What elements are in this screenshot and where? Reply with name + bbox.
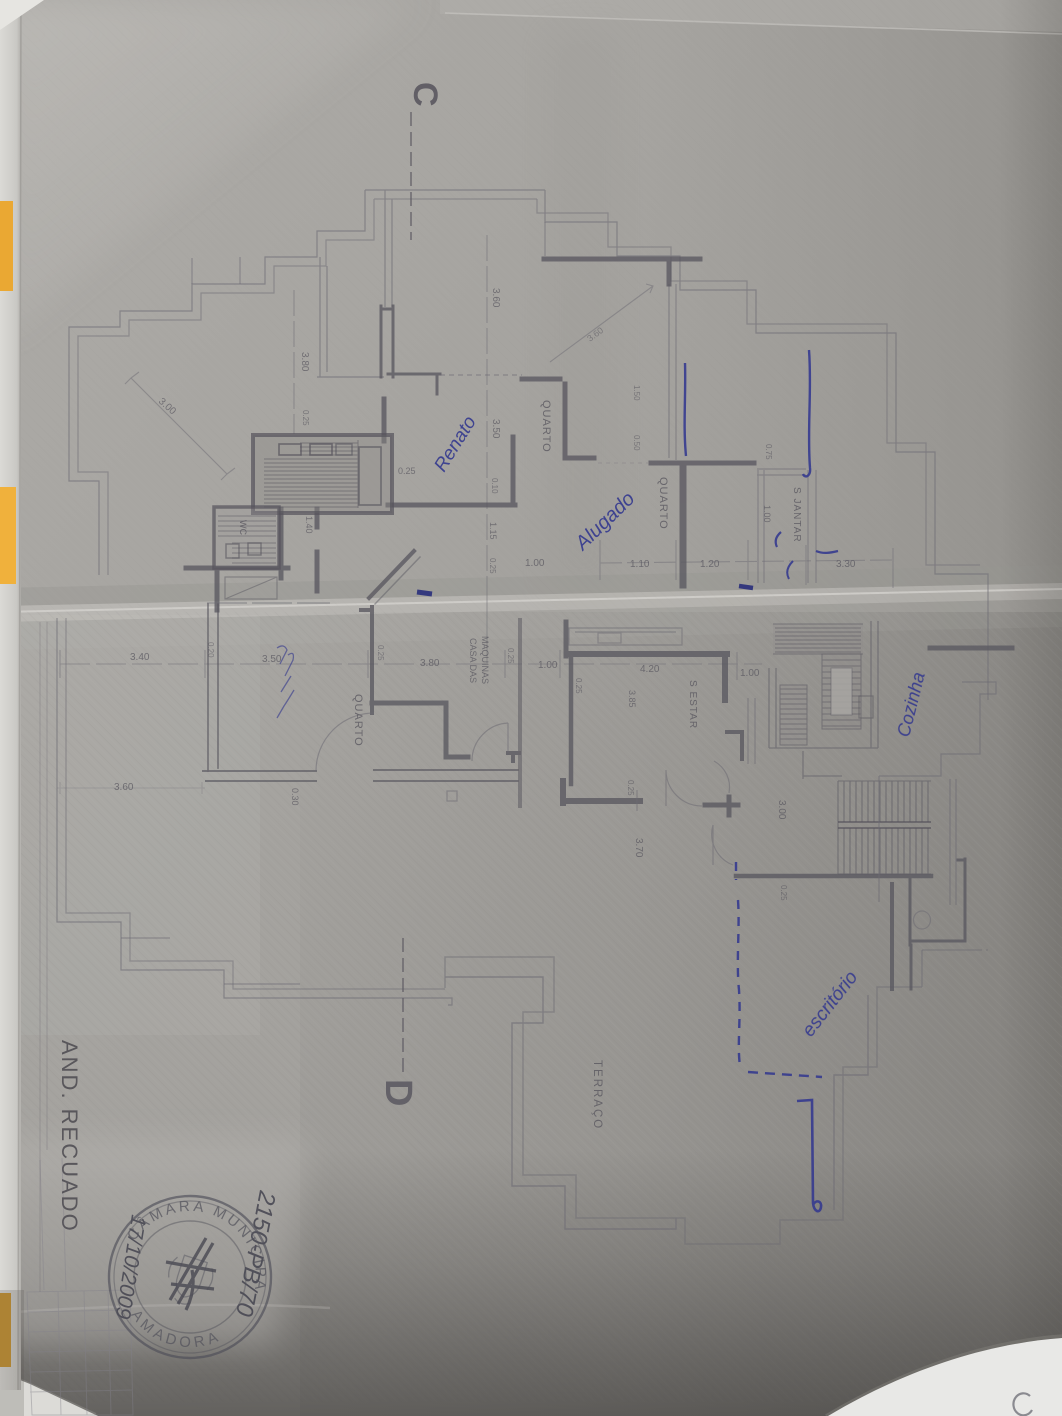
svg-text:0.25: 0.25: [301, 410, 310, 426]
svg-text:1.00: 1.00: [762, 505, 772, 523]
svg-text:0.50: 0.50: [632, 435, 641, 451]
svg-text:0.75: 0.75: [764, 444, 773, 460]
svg-text:4.20: 4.20: [640, 664, 660, 675]
svg-text:0.25: 0.25: [506, 648, 515, 664]
svg-text:S JANTAR: S JANTAR: [791, 487, 802, 543]
svg-text:1.20: 1.20: [700, 559, 720, 570]
svg-text:3.40: 3.40: [130, 652, 150, 663]
svg-text:3.80: 3.80: [420, 658, 440, 669]
svg-text:1.10: 1.10: [630, 559, 650, 570]
svg-text:0.30: 0.30: [290, 788, 300, 806]
svg-text:CASA DAS: CASA DAS: [468, 638, 478, 683]
svg-text:1.15: 1.15: [488, 522, 498, 540]
svg-text:3.70: 3.70: [633, 838, 644, 858]
svg-text:AND. RECUADO: AND. RECUADO: [57, 1040, 82, 1233]
svg-text:1.00: 1.00: [538, 660, 558, 671]
svg-text:3.80: 3.80: [299, 352, 310, 372]
svg-text:WC: WC: [238, 520, 248, 535]
svg-text:MAQUINAS: MAQUINAS: [480, 636, 490, 684]
svg-text:0.25: 0.25: [398, 466, 416, 476]
svg-text:QUARTO: QUARTO: [352, 694, 364, 747]
svg-text:1.40: 1.40: [304, 516, 314, 534]
svg-text:0.25: 0.25: [488, 558, 497, 574]
svg-text:1.50: 1.50: [632, 385, 641, 401]
svg-text:0.10: 0.10: [490, 478, 499, 494]
svg-text:3.50: 3.50: [490, 419, 501, 439]
svg-text:3.60: 3.60: [114, 782, 134, 793]
svg-text:3.30: 3.30: [836, 559, 856, 570]
svg-text:D: D: [377, 1079, 419, 1106]
svg-text:3.00: 3.00: [776, 800, 787, 820]
svg-text:1.00: 1.00: [525, 558, 545, 569]
svg-text:S ESTAR: S ESTAR: [687, 680, 698, 729]
svg-text:0.20: 0.20: [206, 642, 215, 658]
svg-text:0.25: 0.25: [376, 645, 385, 661]
svg-text:0.25: 0.25: [574, 678, 583, 694]
svg-text:1.00: 1.00: [740, 668, 760, 679]
svg-text:3.60: 3.60: [490, 288, 501, 308]
svg-text:0.25: 0.25: [626, 780, 635, 796]
svg-text:TERRAÇO: TERRAÇO: [591, 1060, 603, 1130]
svg-text:QUARTO: QUARTO: [540, 400, 552, 453]
svg-text:0.25: 0.25: [779, 885, 788, 901]
svg-text:3.50: 3.50: [262, 654, 282, 665]
svg-text:C: C: [406, 82, 444, 107]
svg-text:QUARTO: QUARTO: [657, 477, 669, 530]
svg-text:3.85: 3.85: [627, 690, 637, 708]
